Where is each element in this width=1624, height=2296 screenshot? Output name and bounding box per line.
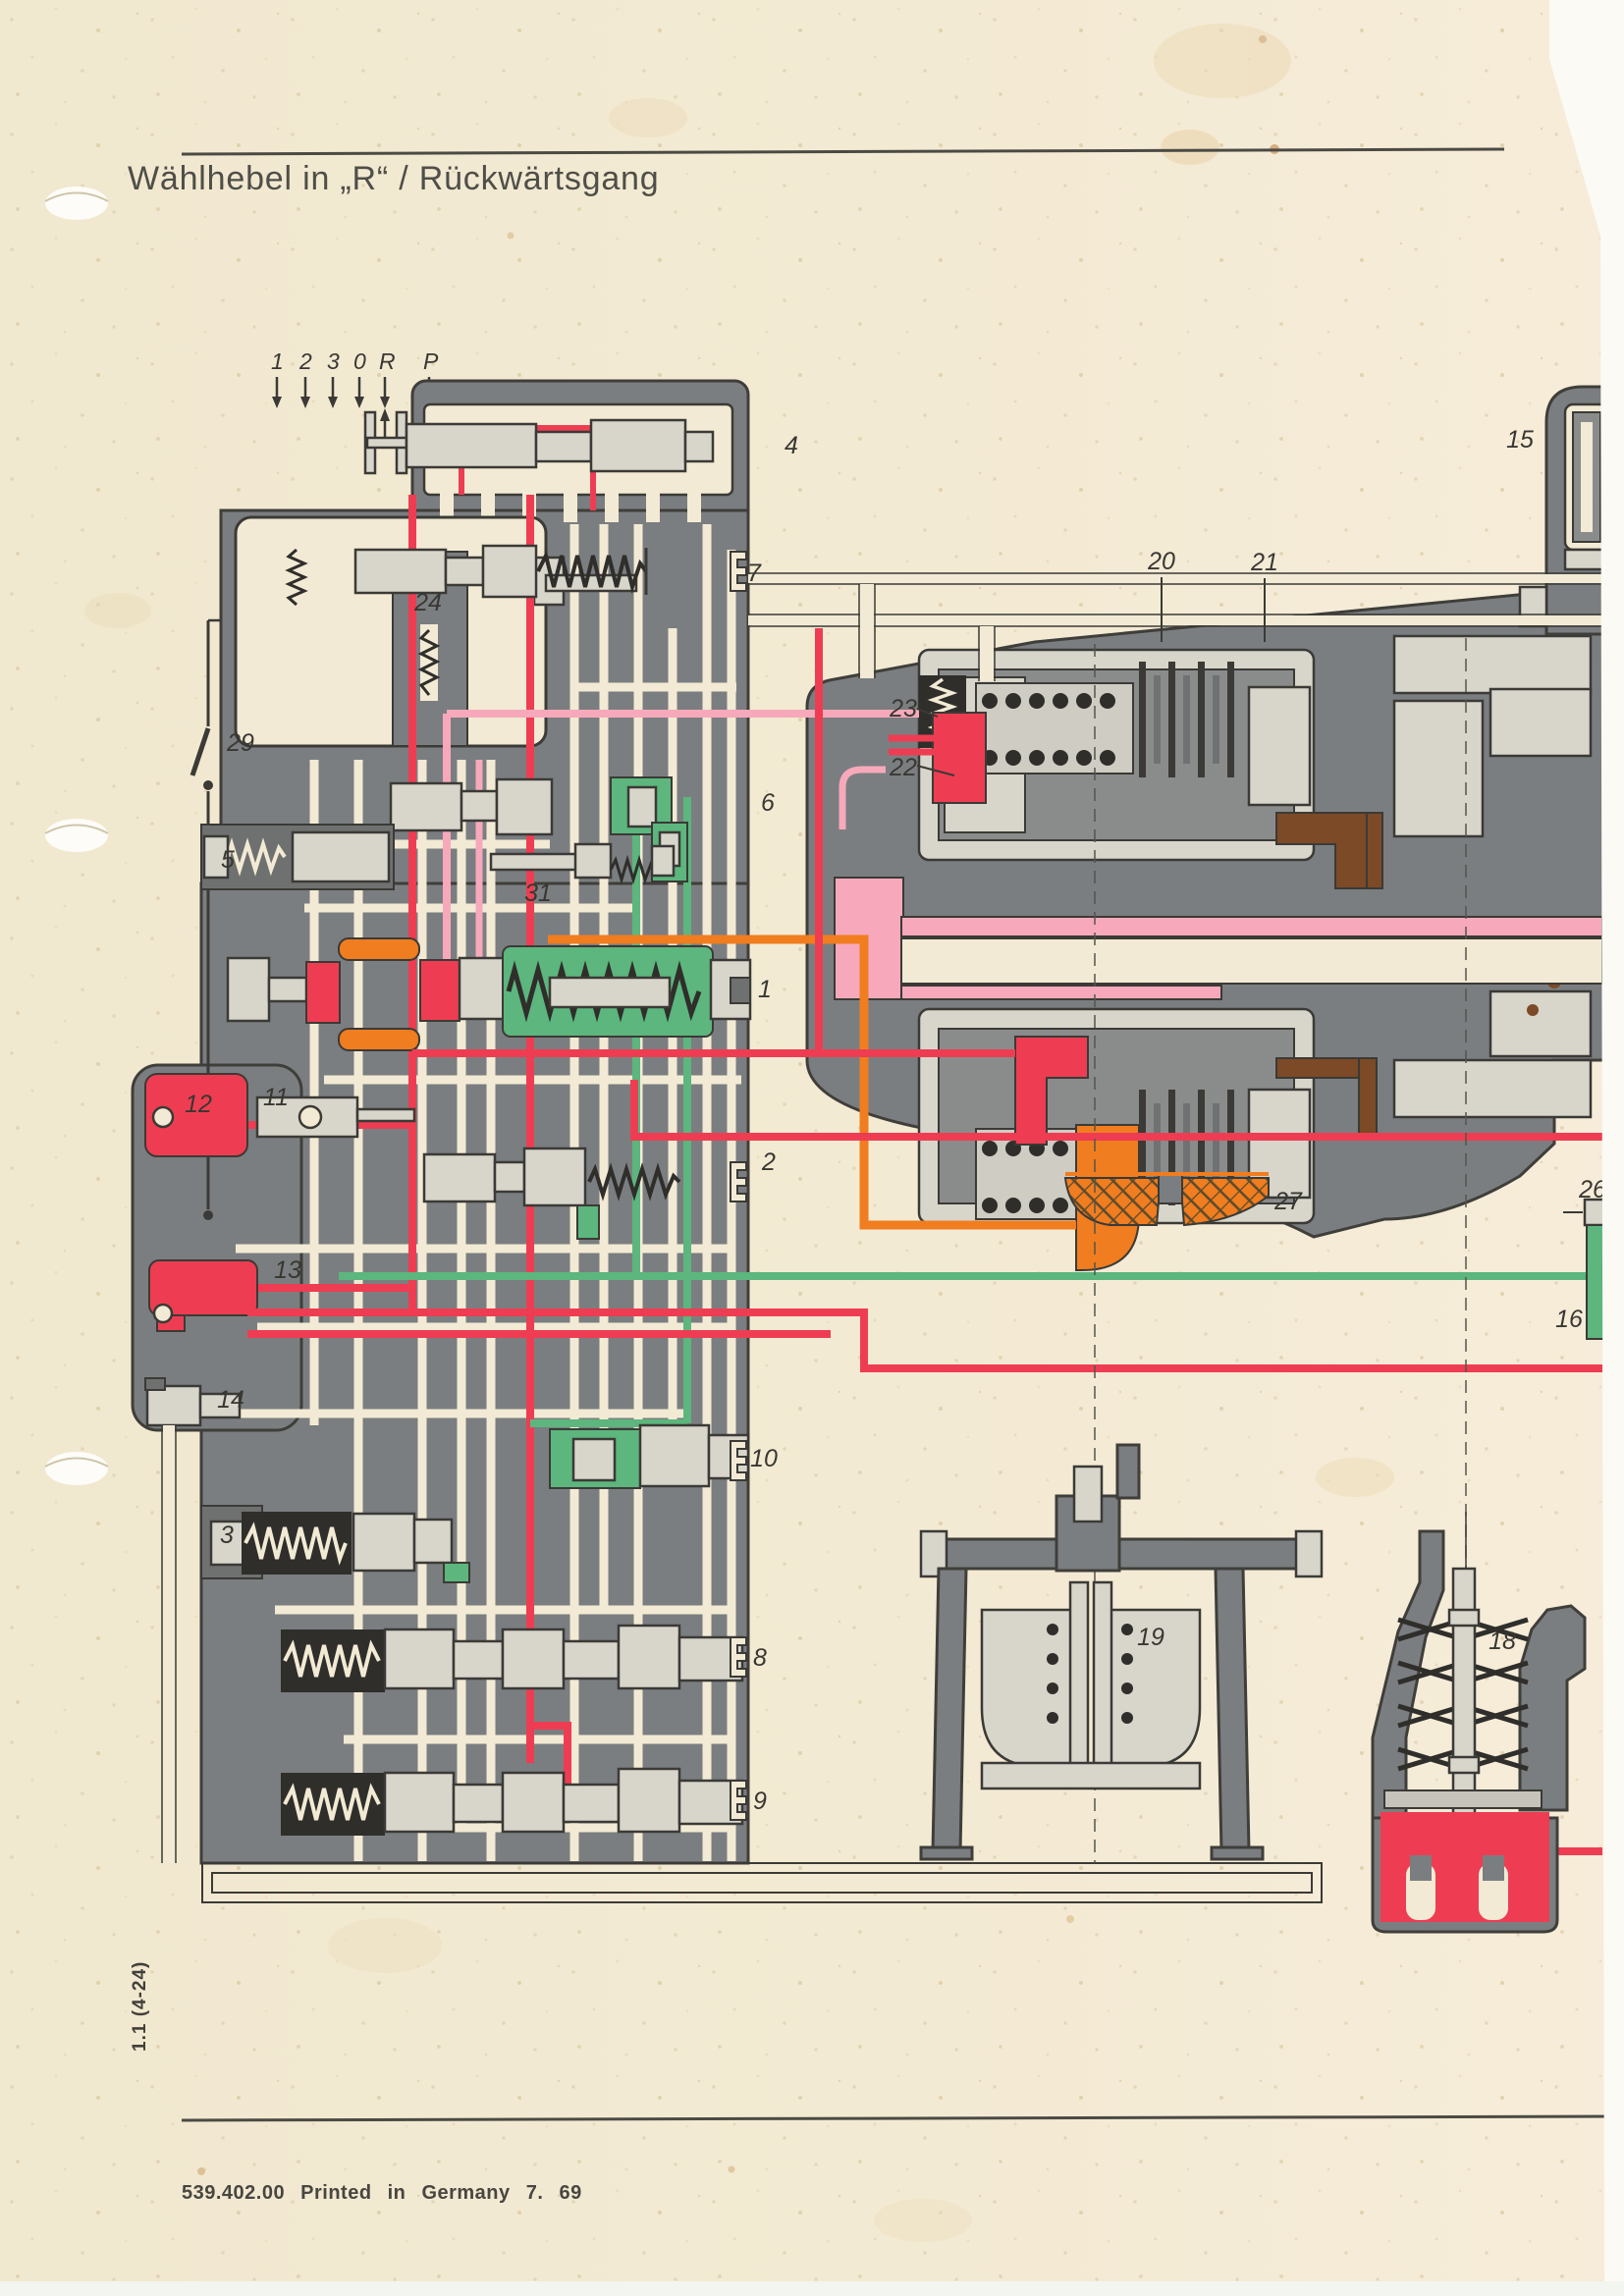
callout-29: 29 [226, 729, 254, 757]
page-title: Wählhebel in „R“ / Rückwärtsgang [128, 160, 659, 197]
callout-8: 8 [753, 1644, 767, 1672]
callout-22: 22 [889, 754, 917, 781]
callout-5: 5 [221, 846, 235, 874]
callout-19: 19 [1137, 1624, 1164, 1651]
callout-21: 21 [1250, 549, 1278, 576]
callout-1: 1 [758, 976, 772, 1003]
selector-pos-0: 0 [353, 348, 366, 374]
callout-4: 4 [785, 432, 798, 459]
callout-15: 15 [1506, 426, 1534, 454]
callout-12: 12 [185, 1091, 212, 1118]
callout-16: 16 [1555, 1306, 1583, 1333]
shift-valve-9 [281, 1769, 746, 1836]
selector-pos-R: R [379, 348, 396, 374]
selector-pos-3: 3 [327, 348, 340, 374]
callout-31: 31 [524, 880, 552, 907]
callout-27: 27 [1273, 1188, 1303, 1215]
manual-page: Wählhebel in „R“ / Rückwärtsgang 1 2 3 0… [0, 0, 1624, 2296]
callout-3: 3 [220, 1522, 234, 1549]
callout-18: 18 [1489, 1628, 1516, 1655]
selector-pos-2: 2 [298, 348, 312, 374]
callout-6: 6 [761, 789, 775, 817]
shift-valve-8 [281, 1626, 746, 1692]
callout-10: 10 [750, 1445, 778, 1472]
callout-20: 20 [1147, 548, 1175, 575]
footer-imprint: 539.402.00 Printed in Germany 7. 69 [182, 2182, 582, 2204]
callout-13: 13 [274, 1256, 301, 1284]
callout-26: 26 [1578, 1176, 1606, 1203]
callout-2: 2 [761, 1148, 776, 1176]
callout-7: 7 [747, 560, 762, 587]
callout-14: 14 [217, 1386, 244, 1414]
callout-24: 24 [413, 589, 442, 616]
selector-pos-P: P [423, 348, 439, 374]
selector-pos-1: 1 [271, 348, 284, 374]
valve-10 [550, 1425, 748, 1488]
callout-23: 23 [889, 695, 917, 722]
callout-11: 11 [263, 1084, 289, 1111]
callout-9: 9 [753, 1788, 767, 1815]
section-side-label: 1.1 (4-24) [130, 1961, 150, 2052]
